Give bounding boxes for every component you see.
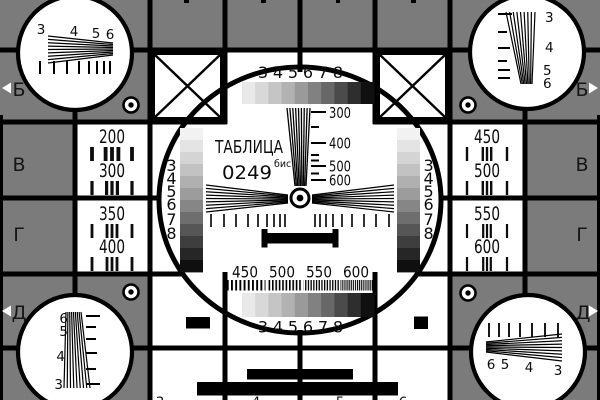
panel-value: 550 — [474, 203, 500, 225]
edge-label: 3 — [156, 395, 165, 400]
target-icon — [461, 98, 476, 113]
wedge-label: 6 — [487, 357, 496, 373]
edge-label: 6 — [399, 395, 408, 400]
wedge-label: 4 — [56, 349, 65, 365]
scale-label: 300 — [329, 104, 351, 122]
step-label: 6 — [303, 318, 313, 337]
panel-value: 450 — [474, 126, 500, 148]
row-letter: Г — [576, 224, 588, 246]
panel-value: 350 — [99, 203, 125, 225]
frequency-label: 550 — [306, 263, 332, 282]
wedge-label: 4 — [70, 24, 79, 40]
step-label: 4 — [273, 63, 283, 82]
panel-value: 200 — [99, 126, 125, 148]
target-icon — [124, 285, 139, 300]
step-label: 4 — [273, 318, 283, 337]
step-label: 8 — [333, 63, 343, 82]
card-code-superscript: бис — [274, 159, 291, 170]
step-label: 3 — [258, 63, 268, 82]
row-letter: В — [575, 154, 588, 176]
row-letter: Д — [12, 302, 27, 324]
step-label: 8 — [424, 224, 434, 243]
wedge-label: 3 — [545, 10, 554, 26]
tv-test-card: 3 4 5 6 3 4 5 6 6 5 4 3 6 5 4 3 ТАБЛИЦА … — [0, 0, 600, 400]
card-title: ТАБЛИЦА — [214, 137, 283, 158]
step-label: 6 — [303, 63, 313, 82]
wedge-label: 3 — [37, 22, 46, 38]
wedge-label: 3 — [554, 363, 563, 379]
panel-value: 400 — [99, 236, 125, 258]
target-icon — [124, 98, 139, 113]
wedge-label: 5 — [501, 357, 510, 373]
row-letter: Г — [13, 224, 25, 246]
wedge-label: 4 — [545, 40, 554, 56]
scale-label: 600 — [329, 172, 351, 190]
row-letter: Б — [12, 79, 25, 101]
target-icon — [461, 286, 476, 301]
panel-value: 500 — [474, 160, 500, 182]
frequency-label: 450 — [232, 263, 258, 282]
edge-label: 4 — [252, 395, 261, 400]
frequency-label: 500 — [269, 263, 295, 282]
panel-value: 300 — [99, 160, 125, 182]
wedge-label: 4 — [525, 360, 534, 376]
wedge-label: 3 — [54, 377, 63, 393]
wedge-label: 6 — [543, 76, 552, 92]
center-target-icon — [291, 189, 309, 207]
frequency-label: 600 — [343, 263, 369, 282]
card-code: 0249 — [222, 162, 272, 184]
step-label: 7 — [318, 63, 328, 82]
step-label: 8 — [333, 318, 343, 337]
step-label: 3 — [258, 318, 268, 337]
test-card-canvas: 3 4 5 6 3 4 5 6 6 5 4 3 6 5 4 3 ТАБЛИЦА … — [0, 0, 600, 400]
step-label: 7 — [318, 318, 328, 337]
step-label: 8 — [166, 224, 176, 243]
wedge-label: 5 — [59, 324, 68, 340]
step-label: 5 — [288, 63, 298, 82]
row-letter: Б — [575, 79, 588, 101]
panel-value: 600 — [474, 236, 500, 258]
wedge-label: 5 — [92, 26, 101, 42]
edge-label: 5 — [336, 395, 345, 400]
scale-label: 400 — [329, 135, 351, 153]
row-letter: В — [12, 154, 25, 176]
row-letter: Д — [576, 302, 591, 324]
wedge-label: 6 — [106, 27, 115, 43]
step-label: 5 — [288, 318, 298, 337]
